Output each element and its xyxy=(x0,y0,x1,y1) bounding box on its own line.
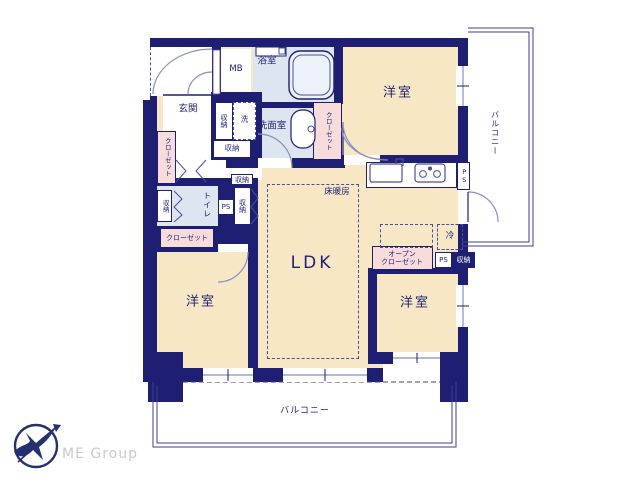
label-entrance: 玄関 xyxy=(178,105,197,116)
label-floor-heating: 床暖房 xyxy=(324,188,350,198)
label-closet-bl: クローゼット xyxy=(166,234,208,242)
entrance-alcove xyxy=(150,47,212,96)
exterior-strip xyxy=(140,38,150,100)
label-ldk: LDK xyxy=(291,254,334,274)
exterior-notch xyxy=(383,364,440,382)
kitchen-counter xyxy=(366,162,457,188)
label-open-closet: オープン クローゼット xyxy=(381,250,423,266)
label-storage-toilet-side: 収納 xyxy=(161,200,168,213)
label-closet-left: クローゼット xyxy=(163,138,170,177)
logo-bird-icon xyxy=(14,424,61,467)
label-storage-washer-side: 収納 xyxy=(220,114,228,128)
logo-text: ME Group xyxy=(62,446,138,462)
wall-br-bottom xyxy=(368,352,462,364)
label-ps-kitchen: PS xyxy=(460,168,467,184)
corner-block-right xyxy=(440,364,468,402)
wall-ldk-bl-room xyxy=(248,244,258,368)
label-ps-toilet: PS xyxy=(222,203,231,211)
label-meter-box: MB xyxy=(229,65,242,75)
label-balcony-right: バルコニー xyxy=(490,111,499,156)
door-gap-bl-room xyxy=(218,244,248,252)
label-washroom: 洗面室 xyxy=(258,122,287,133)
label-open-closet-line2: クローゼット xyxy=(381,258,423,266)
label-storage-mid-top: 収納 xyxy=(235,175,249,183)
label-open-closet-line1: オープン xyxy=(388,250,416,258)
label-refrigerator: 冷 xyxy=(446,232,455,242)
label-storage-kitchen-right: 収納 xyxy=(457,256,471,264)
door-gap-washroom xyxy=(258,158,292,168)
corner-block-left xyxy=(148,352,183,402)
label-storage-mid: 収納 xyxy=(238,199,246,213)
label-balcony-bottom: バルコニー xyxy=(280,406,330,416)
wall-br-room-left xyxy=(368,268,377,364)
label-bathroom: 浴室 xyxy=(257,57,276,68)
wall-bath-tr xyxy=(334,47,343,104)
label-ps-br: PS xyxy=(439,256,448,264)
label-storage-under-washer: 収納 xyxy=(225,145,240,154)
label-western-room-tr: 洋室 xyxy=(383,87,413,102)
label-western-room-br: 洋室 xyxy=(400,297,430,312)
alcove-divider xyxy=(212,47,221,96)
label-laundry: 洗 xyxy=(241,116,249,125)
label-toilet: トイレ xyxy=(202,192,211,219)
balcony-door-arc xyxy=(468,192,498,222)
floor-plan: 洋室 洋室 洋室 LDK 浴室 洗面室 玄関 トイレ MB クローゼット クロー… xyxy=(0,0,640,480)
counter-space xyxy=(380,224,433,248)
label-closet-washroom-side: クローゼット xyxy=(324,112,331,151)
label-western-room-bl: 洋室 xyxy=(186,296,216,311)
